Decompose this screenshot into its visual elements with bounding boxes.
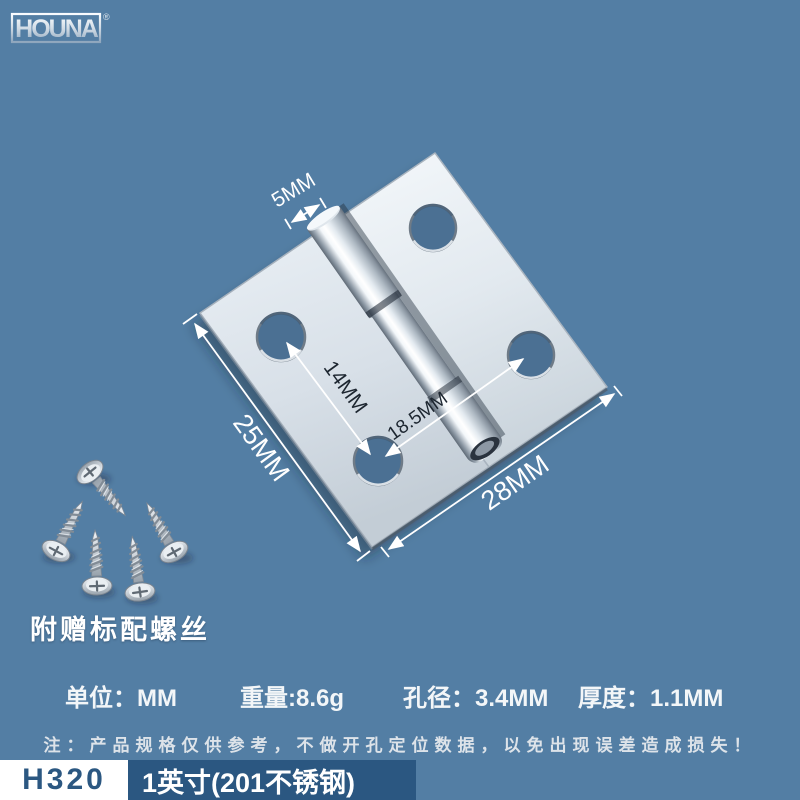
screws-image xyxy=(39,456,193,604)
model-number-badge: H320 xyxy=(0,760,128,800)
screw xyxy=(134,496,192,567)
logo-text: HOUNA xyxy=(15,15,99,43)
screws-caption: 附赠标配螺丝 xyxy=(30,608,210,647)
screw xyxy=(39,495,96,566)
screw xyxy=(117,534,156,603)
disclaimer-note: 注：产品规格仅供参考，不做开孔定位数据，以免出现误差造成损失！ xyxy=(0,731,800,756)
dim-label-5mm: 5MM xyxy=(268,169,320,213)
spec-thickness: 厚度：1.1MM xyxy=(578,678,723,713)
spec-hole-diameter: 孔径：3.4MM xyxy=(403,678,548,713)
registered-trademark-symbol: ® xyxy=(103,12,110,22)
spec-unit: 单位：MM xyxy=(65,678,177,713)
screw xyxy=(73,456,137,525)
footer-bar: H320 1英寸(201不锈钢) xyxy=(0,760,800,800)
spec-row: 单位：MM 重量:8.6g 孔径：3.4MM 厚度：1.1MM xyxy=(0,678,800,708)
size-material-badge: 1英寸(201不锈钢) xyxy=(128,760,416,800)
product-diagram-page: 5MM 25MM 28MM 14MM 18.5MM HOUNA ® xyxy=(0,0,800,800)
brand-logo: HOUNA ® xyxy=(8,8,128,54)
spec-weight: 重量:8.6g xyxy=(240,678,344,713)
screw xyxy=(80,530,112,596)
